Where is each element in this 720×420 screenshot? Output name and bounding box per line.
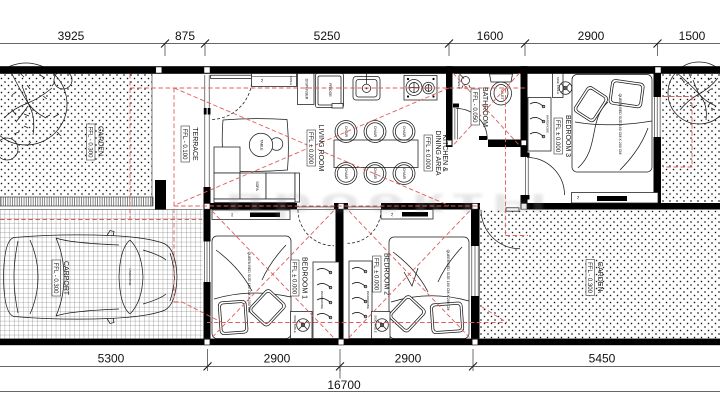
svg-text:1500: 1500 (679, 29, 706, 43)
svg-text:FFL - 0.100: FFL - 0.100 (181, 129, 187, 160)
svg-text:KITCHEN &: KITCHEN & (441, 134, 448, 172)
svg-text:GARDEN.: GARDEN. (596, 262, 603, 294)
svg-text:FFL - 0.300: FFL - 0.300 (586, 262, 592, 293)
svg-text:DISPENSER: DISPENSER (305, 79, 309, 100)
svg-text:FFL ± 0.000: FFL ± 0.000 (554, 120, 560, 153)
svg-text:TOILET: TOILET (500, 87, 504, 100)
svg-text:LIMOUSINE: LIMOUSINE (128, 268, 132, 285)
svg-text:FFL ± 0.000: FFL ± 0.000 (307, 132, 313, 165)
svg-text:LIVING ROOM: LIVING ROOM (317, 125, 324, 172)
svg-text:SIDE TABLE: SIDE TABLE (293, 315, 297, 333)
svg-text:2900: 2900 (395, 352, 422, 366)
svg-text:FFL ± 0.000: FFL ± 0.000 (424, 137, 430, 170)
svg-text:2900: 2900 (578, 29, 605, 43)
svg-text:TERRACE: TERRACE (191, 127, 198, 161)
svg-text:QUEEN BED SIZE 160 CM X 200 CM: QUEEN BED SIZE 160 CM X 200 CM (446, 250, 450, 311)
svg-text:5250: 5250 (314, 29, 341, 43)
svg-text:BEDROOM 2: BEDROOM 2 (383, 253, 390, 295)
svg-text:WARDROBE: WARDROBE (320, 291, 324, 309)
svg-text:FFL ± 0.000: FFL ± 0.000 (373, 258, 379, 291)
svg-text:TABLE: TABLE (289, 76, 293, 86)
svg-text:FRIDGE: FRIDGE (328, 83, 332, 97)
svg-text:CARPORT: CARPORT (62, 261, 69, 296)
svg-text:875: 875 (175, 29, 195, 43)
svg-text:QUEEN BED SIZE 160 CM X 200 CM: QUEEN BED SIZE 160 CM X 200 CM (247, 252, 251, 313)
svg-text:5450: 5450 (589, 352, 616, 366)
svg-text:BEDROOM 3: BEDROOM 3 (564, 115, 571, 157)
svg-text:SHOWER: SHOWER (457, 75, 461, 90)
svg-text:DINING AREA: DINING AREA (434, 130, 441, 175)
svg-text:5300: 5300 (98, 352, 125, 366)
svg-text:TABLE: TABLE (260, 139, 264, 151)
svg-text:1600: 1600 (477, 29, 504, 43)
svg-text:QUEEN BED SIZE 160 CM X 200 CM: QUEEN BED SIZE 160 CM X 200 CM (618, 94, 622, 155)
svg-text:BATHROOM: BATHROOM (481, 87, 488, 127)
svg-text:FFL - 0.050: FFL - 0.050 (471, 92, 477, 123)
svg-text:WARDROBE: WARDROBE (366, 291, 370, 309)
svg-text:16700: 16700 (327, 378, 361, 392)
svg-text:FFL ± 0.000: FFL ± 0.000 (291, 262, 297, 295)
svg-text:GARDEN.: GARDEN. (97, 126, 104, 158)
svg-text:3925: 3925 (58, 29, 85, 43)
svg-text:FFL - 0.300: FFL - 0.300 (52, 263, 58, 294)
svg-text:FFL - 0.300: FFL - 0.300 (87, 127, 93, 158)
svg-text:BEDROOM 1: BEDROOM 1 (301, 257, 308, 299)
svg-text:WARDROBE: WARDROBE (546, 115, 550, 133)
svg-text:2900: 2900 (264, 352, 291, 366)
